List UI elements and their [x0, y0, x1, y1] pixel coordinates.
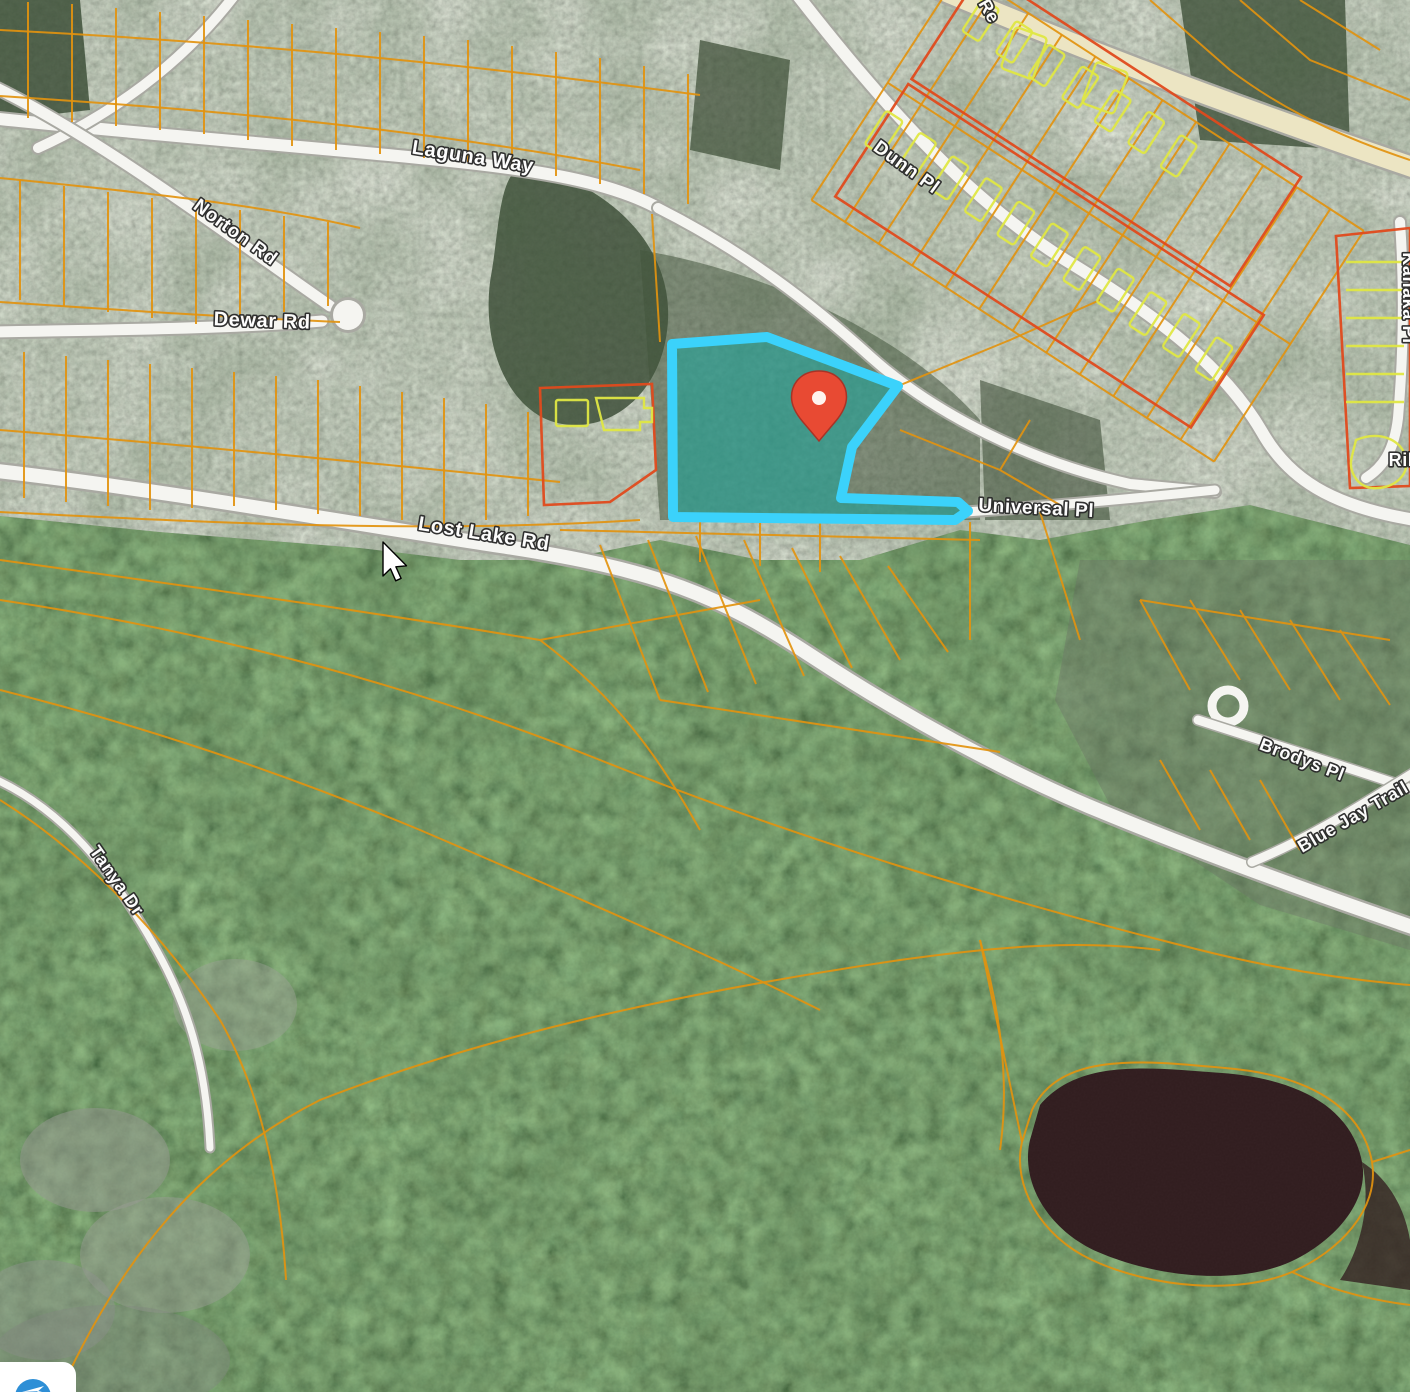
satellite-map[interactable]: Laguna WayDunn PlNorton RdDewar RdLost L…	[0, 0, 1410, 1392]
road-label-ril-partial: Ril	[1389, 450, 1410, 470]
road-label-dewar-rd: Dewar Rd	[213, 308, 311, 333]
map-logo-badge[interactable]	[0, 1362, 76, 1392]
road-label-kanaka-pl: Kanaka Pl	[1399, 252, 1410, 343]
